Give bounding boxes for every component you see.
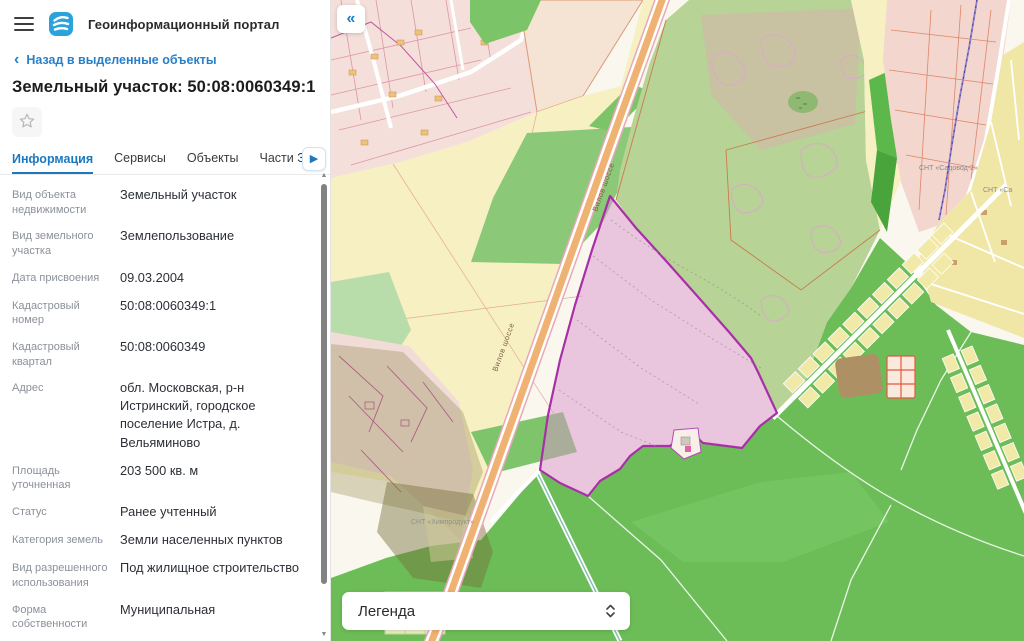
double-chevron-left-icon: « [347,10,356,27]
field-value: Ранее учтенный [120,503,306,521]
page-title: Земельный участок: 50:08:0060349:1 [0,71,330,99]
tab-servisy[interactable]: Сервисы [114,151,166,174]
snt-label: СНТ «Химпродукт» [411,519,474,526]
map-drawing: Вилов шоссе Вилов шоссе СНТ «Садовод-2» … [331,0,1024,641]
field-value: Под жилищное строительство [120,559,306,590]
field-row: Вид объекта недвижимостиЗемельный участо… [12,181,306,222]
geo-portal-app: Геоинформационный портал ‹ Назад в выдел… [0,0,1024,641]
field-label: Адрес [12,379,112,452]
tabs-bar: Информация Сервисы Объекты Части ЗУ Сост… [0,141,330,175]
field-row: СтатусРанее учтенный [12,498,306,526]
map-canvas[interactable]: Вилов шоссе Вилов шоссе СНТ «Садовод-2» … [331,0,1024,641]
tab-obekty[interactable]: Объекты [187,151,239,174]
field-row: Вид земельного участкаЗемлепользование [12,222,306,263]
field-row: Кадастровый квартал50:08:0060349 [12,333,306,374]
sort-chevrons-icon [605,602,616,620]
building-cluster [834,353,915,399]
field-label: Статус [12,503,112,521]
field-row: Категория земельЗемли населенных пунктов [12,526,306,554]
legend-toggle[interactable]: Легенда [342,592,630,630]
favorite-button[interactable] [12,107,42,137]
field-value: 50:08:0060349:1 [120,297,306,328]
field-value: Землепользование [120,227,306,258]
field-label: Кадастровый квартал [12,338,112,369]
snt-label: СНТ «Са [983,187,1012,194]
field-value: 203 500 кв. м [120,462,306,493]
field-label: Площадь уточненная [12,462,112,493]
field-row: Адресобл. Московская, р-н Истринский, го… [12,374,306,457]
back-link-label: Назад в выделенные объекты [26,53,216,67]
field-row: Кадастровая стоимость1 032 219 155 руб. [12,637,306,641]
attributes-list: Вид объекта недвижимостиЗемельный участо… [0,175,330,641]
scroll-down-icon[interactable]: ▼ [319,631,329,638]
field-value: Земли населенных пунктов [120,531,306,549]
collapse-panel-button[interactable]: « [337,5,365,33]
snt-label: СНТ «Садовод-2» [919,165,978,172]
field-label: Дата присвоения [12,269,112,287]
legend-label: Легенда [358,603,415,620]
field-label: Кадастровый номер [12,297,112,328]
field-row: Кадастровый номер50:08:0060349:1 [12,292,306,333]
field-value: 50:08:0060349 [120,338,306,369]
field-label: Вид объекта недвижимости [12,186,112,217]
tabs-scroll-right-button[interactable]: ▶ [302,147,326,171]
back-link[interactable]: ‹ Назад в выделенные объекты [0,45,330,71]
scrollbar-thumb[interactable] [321,184,327,584]
field-label: Вид земельного участка [12,227,112,258]
field-value: 09.03.2004 [120,269,306,287]
field-label: Форма собственности [12,601,112,632]
field-value: обл. Московская, р-н Истринский, городск… [120,379,306,452]
info-panel: Геоинформационный портал ‹ Назад в выдел… [0,0,331,641]
field-row: Форма собственностиМуниципальная [12,596,306,637]
field-row: Дата присвоения09.03.2004 [12,264,306,292]
panel-scrollbar[interactable]: ▲ ▼ [319,170,329,641]
app-logo-icon [48,11,74,37]
menu-icon[interactable] [14,17,34,31]
field-row: Площадь уточненная203 500 кв. м [12,457,306,498]
field-value: Муниципальная [120,601,306,632]
field-label: Вид разрешенного использования [12,559,112,590]
field-value: Земельный участок [120,186,306,217]
panel-header: Геоинформационный портал [0,0,330,45]
field-label: Категория земель [12,531,112,549]
app-title: Геоинформационный портал [88,17,279,32]
star-icon [18,112,36,133]
chevron-left-icon: ‹ [14,54,19,66]
field-row: Вид разрешенного использованияПод жилищн… [12,554,306,595]
scroll-up-icon[interactable]: ▲ [319,172,329,179]
tab-informatsiya[interactable]: Информация [12,152,93,175]
